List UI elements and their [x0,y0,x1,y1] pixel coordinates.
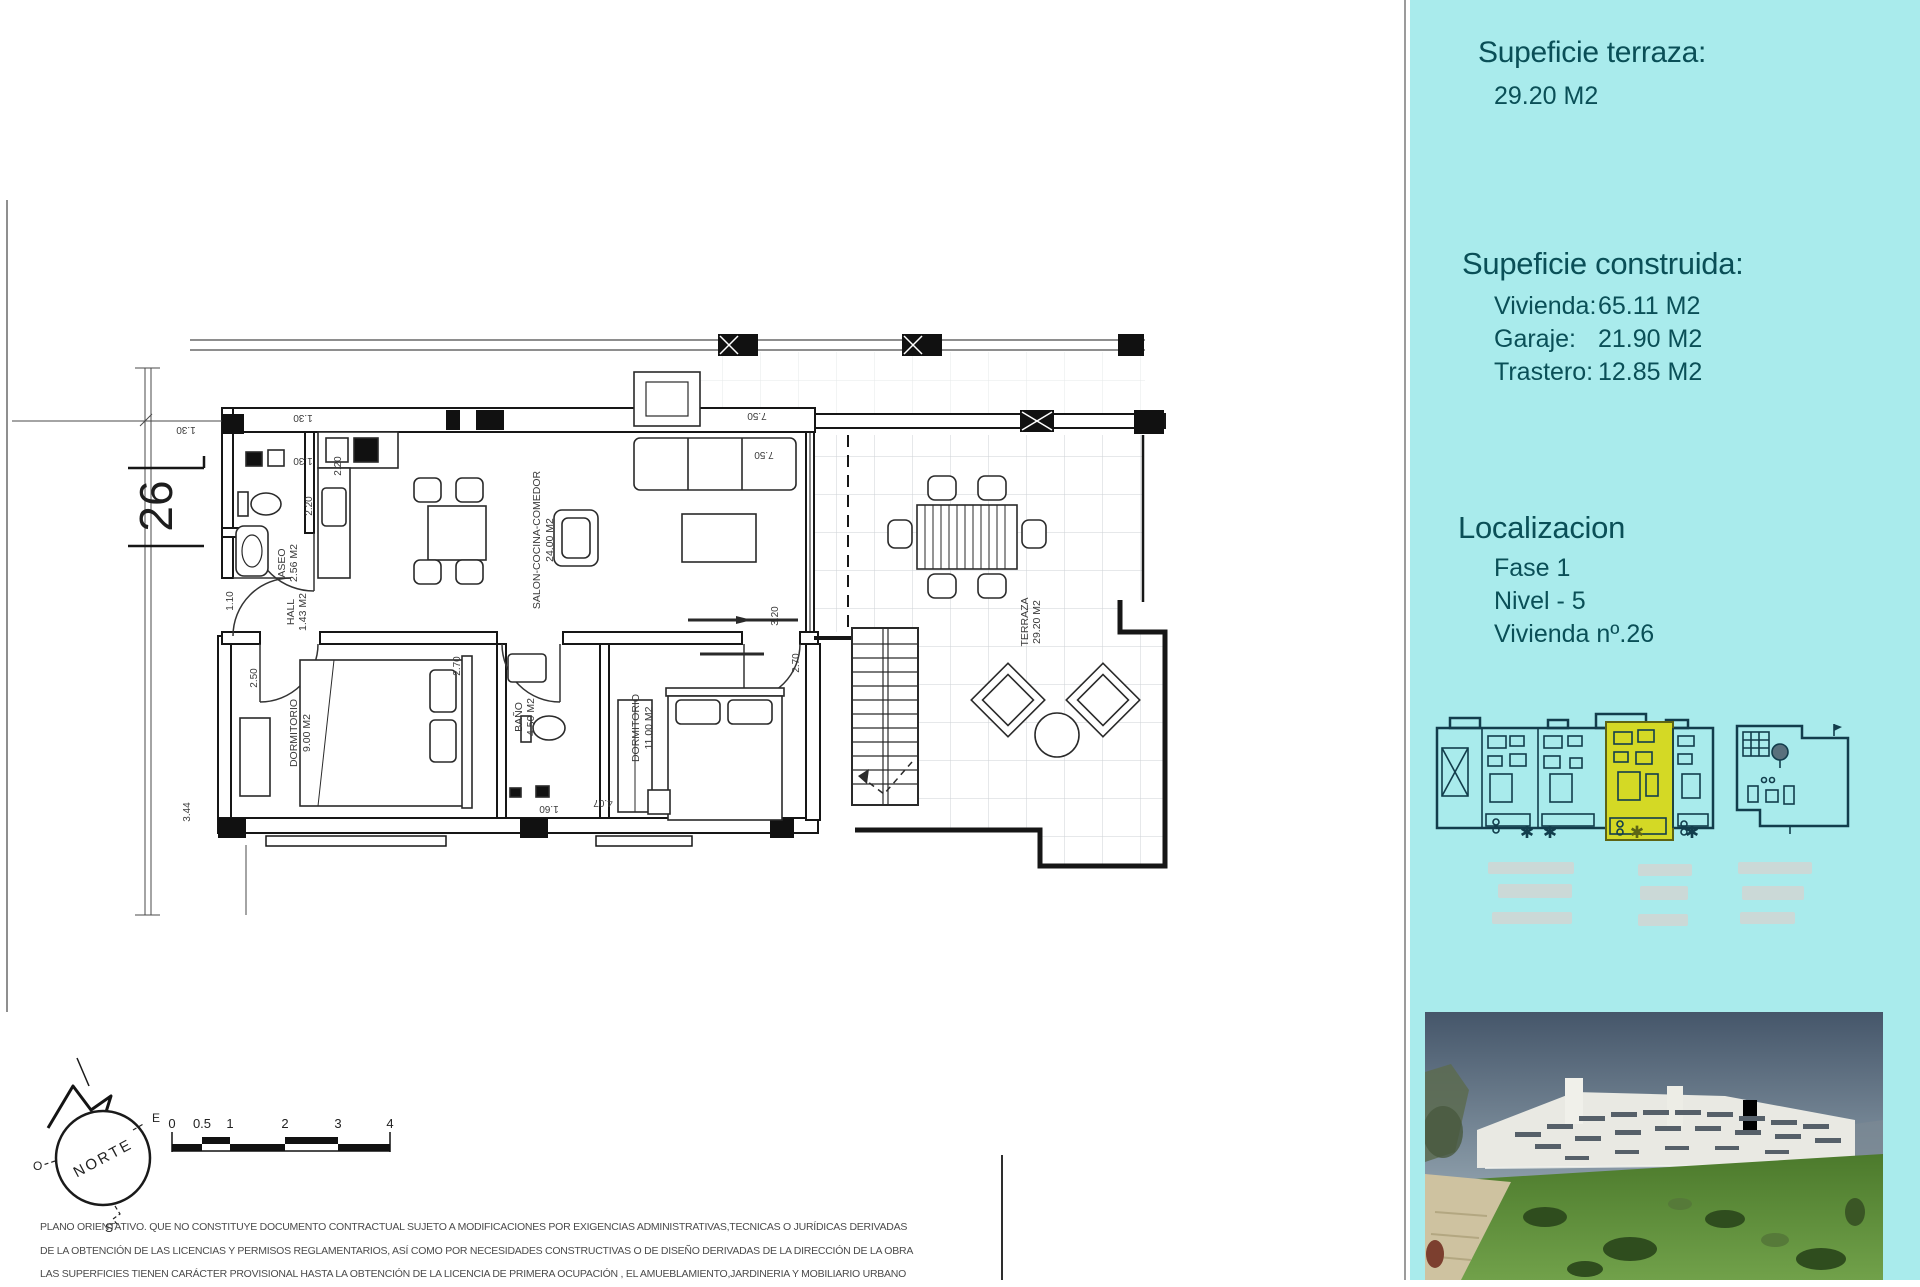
svg-text:✱: ✱ [1543,823,1557,842]
svg-text:2: 2 [281,1116,288,1131]
svg-text:24.00 M2: 24.00 M2 [544,518,556,562]
svg-text:1.30: 1.30 [176,424,196,435]
built-row-garaje: Garaje:21.90 M2 [1494,323,1702,356]
svg-text:2.50: 2.50 [249,668,260,688]
svg-text:✱: ✱ [1685,823,1699,842]
svg-text:3.20: 3.20 [770,606,781,626]
stairs [852,628,918,805]
built-rows: Vivienda:65.11 M2 Garaje:21.90 M2 Traste… [1494,290,1702,389]
svg-text:BAÑO: BAÑO [512,702,525,732]
svg-text:DORMITORIO: DORMITORIO [630,694,642,762]
exterior-ledges [266,836,692,846]
svg-text:1.30: 1.30 [293,412,313,423]
svg-text:1.60: 1.60 [539,803,559,814]
svg-text:4.50 M2: 4.50 M2 [525,698,537,736]
disclaimer-line-2: DE LA OBTENCIÓN DE LAS LICENCIAS Y PERMI… [40,1240,780,1264]
scale-bar: 0 0.5 1 2 3 4 [168,1116,393,1152]
built-row-trastero: Trastero:12.85 M2 [1494,356,1702,389]
kitchen [318,432,398,578]
svg-text:4.07: 4.07 [593,797,613,808]
info-sidebar: Supeficie terraza: 29.20 M2 Supeficie co… [1410,0,1920,1280]
svg-text:2.20: 2.20 [333,456,344,476]
room-label-hall: HALL 1.43 M2 [285,593,309,631]
svg-text:TERRAZA: TERRAZA [1019,597,1031,646]
dining-set [414,478,486,584]
building-render-photo [1425,1012,1883,1280]
svg-text:29.20 M2: 29.20 M2 [1031,600,1043,644]
location-title: Localizacion [1458,510,1625,546]
svg-text:1.30: 1.30 [293,455,313,466]
room-label-bano: BAÑO 4.50 M2 [512,698,537,736]
dimension-lines [12,368,246,915]
sidebar-divider [1404,0,1406,1280]
room-label-terraza: TERRAZA 29.20 M2 [1019,597,1043,646]
svg-text:1.10: 1.10 [225,591,236,611]
svg-text:3.44: 3.44 [182,802,193,822]
svg-text:2.56 M2: 2.56 M2 [288,544,300,582]
svg-text:HALL: HALL [285,599,297,625]
svg-text:1.43 M2: 1.43 M2 [297,593,309,631]
disclaimer-line-1: PLANO ORIENTATIVO. QUE NO CONSTITUYE DOC… [40,1216,780,1240]
room-label-salon: SALON-COCINA-COMEDOR 24.00 M2 [531,470,556,609]
svg-text:DORMITORIO: DORMITORIO [288,699,300,767]
bedroom1-furniture [240,656,472,808]
svg-text:26: 26 [130,480,182,531]
svg-text:3: 3 [334,1116,341,1131]
north-compass: NORTE E O S [33,1058,160,1235]
svg-text:2.70: 2.70 [791,653,802,673]
svg-text:2.70: 2.70 [452,656,463,676]
svg-text:9.00 M2: 9.00 M2 [301,714,313,752]
unit-number: 26 [128,456,204,546]
built-row-vivienda: Vivienda:65.11 M2 [1494,290,1702,323]
disclaimer-text: PLANO ORIENTATIVO. QUE NO CONSTITUYE DOC… [40,1216,780,1287]
svg-text:ASEO: ASEO [276,548,288,577]
svg-text:E: E [152,1111,160,1125]
svg-text:SALON-COCINA-COMEDOR: SALON-COCINA-COMEDOR [531,470,543,609]
svg-text:0: 0 [168,1116,175,1131]
location-rows: Fase 1 Nivel - 5 Vivienda nº.26 [1494,552,1654,651]
site-key-plan: ✱✱ ✱ ✱ [1430,710,1860,858]
location-row-nivel: Nivel - 5 [1494,585,1654,618]
location-row-fase: Fase 1 [1494,552,1654,585]
svg-text:✱: ✱ [1630,823,1644,842]
terrace-value: 29.20 M2 [1494,82,1598,111]
svg-text:7.50: 7.50 [747,410,767,421]
svg-text:2.20: 2.20 [304,496,315,516]
disclaimer-line-3: LAS SUPERFICIES TIENEN CARÁCTER PROVISIO… [40,1263,780,1287]
location-row-vivienda: Vivienda nº.26 [1494,618,1654,651]
room-label-aseo: ASEO 2.56 M2 [276,544,300,582]
svg-text:O: O [33,1159,42,1173]
svg-text:4: 4 [386,1116,393,1131]
garage-key-plan [1737,724,1848,834]
svg-text:1: 1 [226,1116,233,1131]
roof-edge-line [190,340,1145,350]
terrace-title: Supeficie terraza: [1478,36,1706,70]
svg-text:7.50: 7.50 [754,449,774,460]
svg-text:✱: ✱ [1520,823,1534,842]
built-title: Supeficie construida: [1462,246,1743,282]
svg-text:0.5: 0.5 [193,1116,211,1131]
svg-text:11.00 M2: 11.00 M2 [643,706,655,749]
